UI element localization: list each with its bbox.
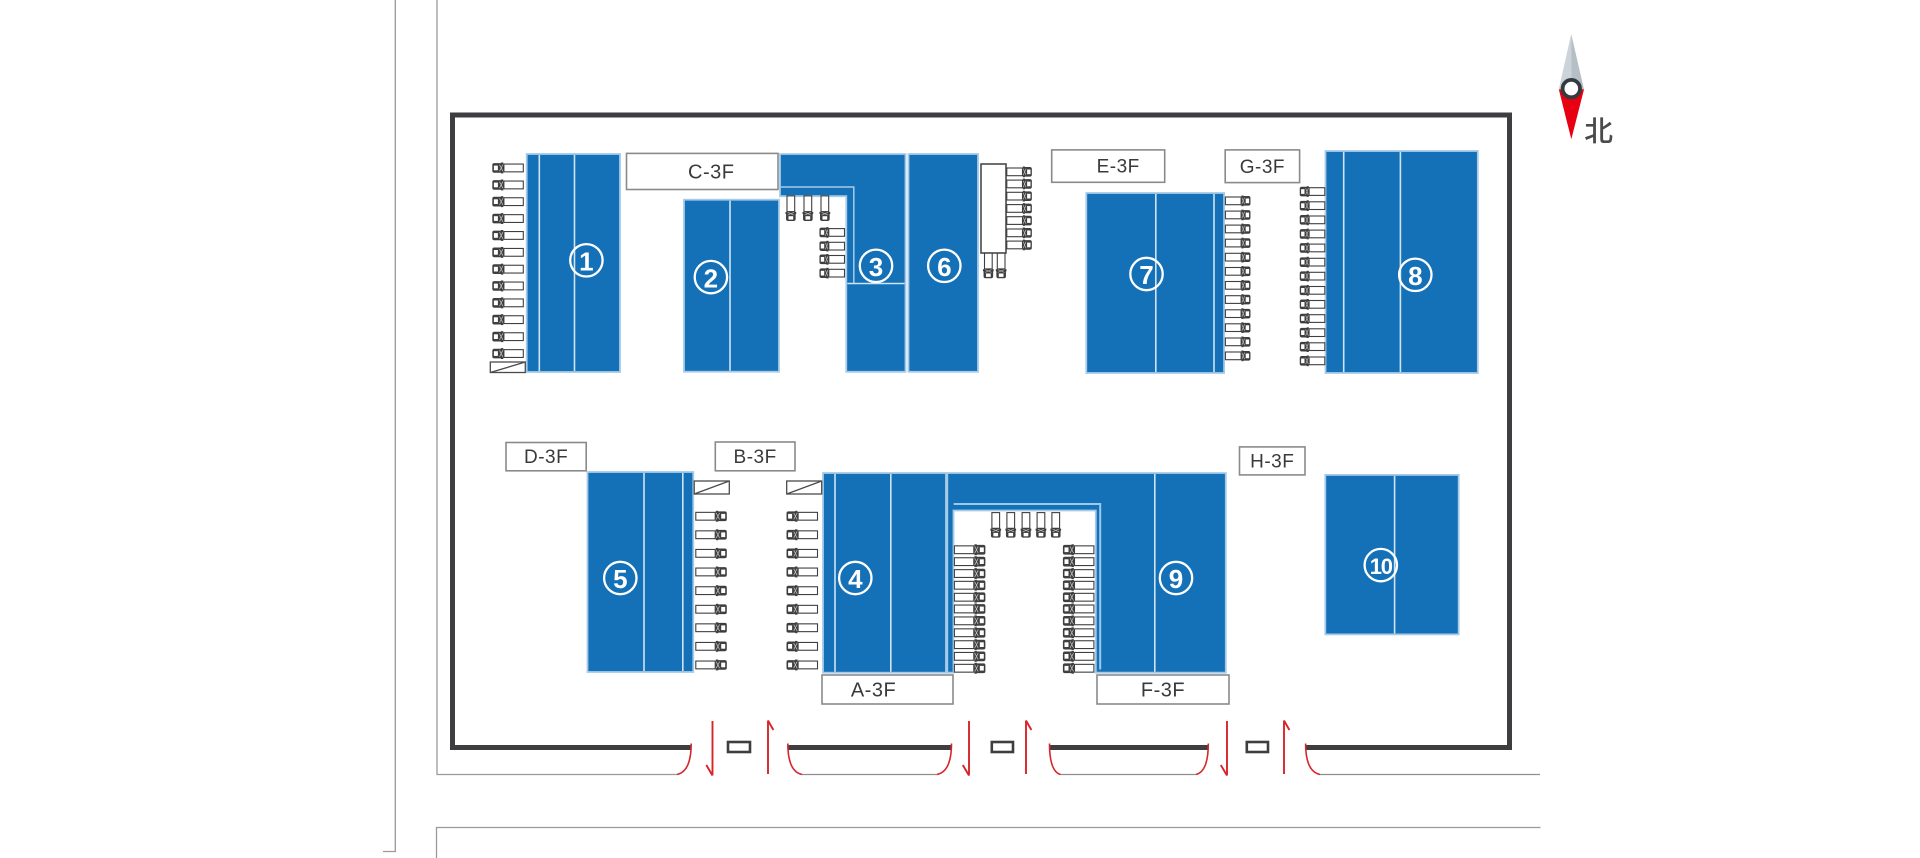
- svg-text:10: 10: [1370, 554, 1393, 579]
- svg-text:6: 6: [937, 252, 951, 282]
- svg-text:5: 5: [613, 564, 627, 594]
- svg-text:1: 1: [579, 247, 593, 277]
- svg-text:8: 8: [1408, 261, 1422, 291]
- svg-text:9: 9: [1169, 564, 1183, 594]
- svg-text:B-3F: B-3F: [734, 447, 777, 468]
- svg-text:H-3F: H-3F: [1250, 451, 1294, 472]
- svg-text:G-3F: G-3F: [1240, 157, 1285, 178]
- svg-text:A-3F: A-3F: [851, 680, 896, 702]
- svg-text:D-3F: D-3F: [524, 447, 568, 468]
- svg-text:3: 3: [869, 252, 883, 282]
- svg-text:F-3F: F-3F: [1141, 680, 1185, 702]
- svg-text:7: 7: [1139, 260, 1153, 290]
- svg-text:4: 4: [848, 564, 863, 594]
- svg-text:E-3F: E-3F: [1097, 157, 1140, 178]
- svg-text:C-3F: C-3F: [688, 161, 734, 183]
- svg-text:2: 2: [704, 263, 718, 293]
